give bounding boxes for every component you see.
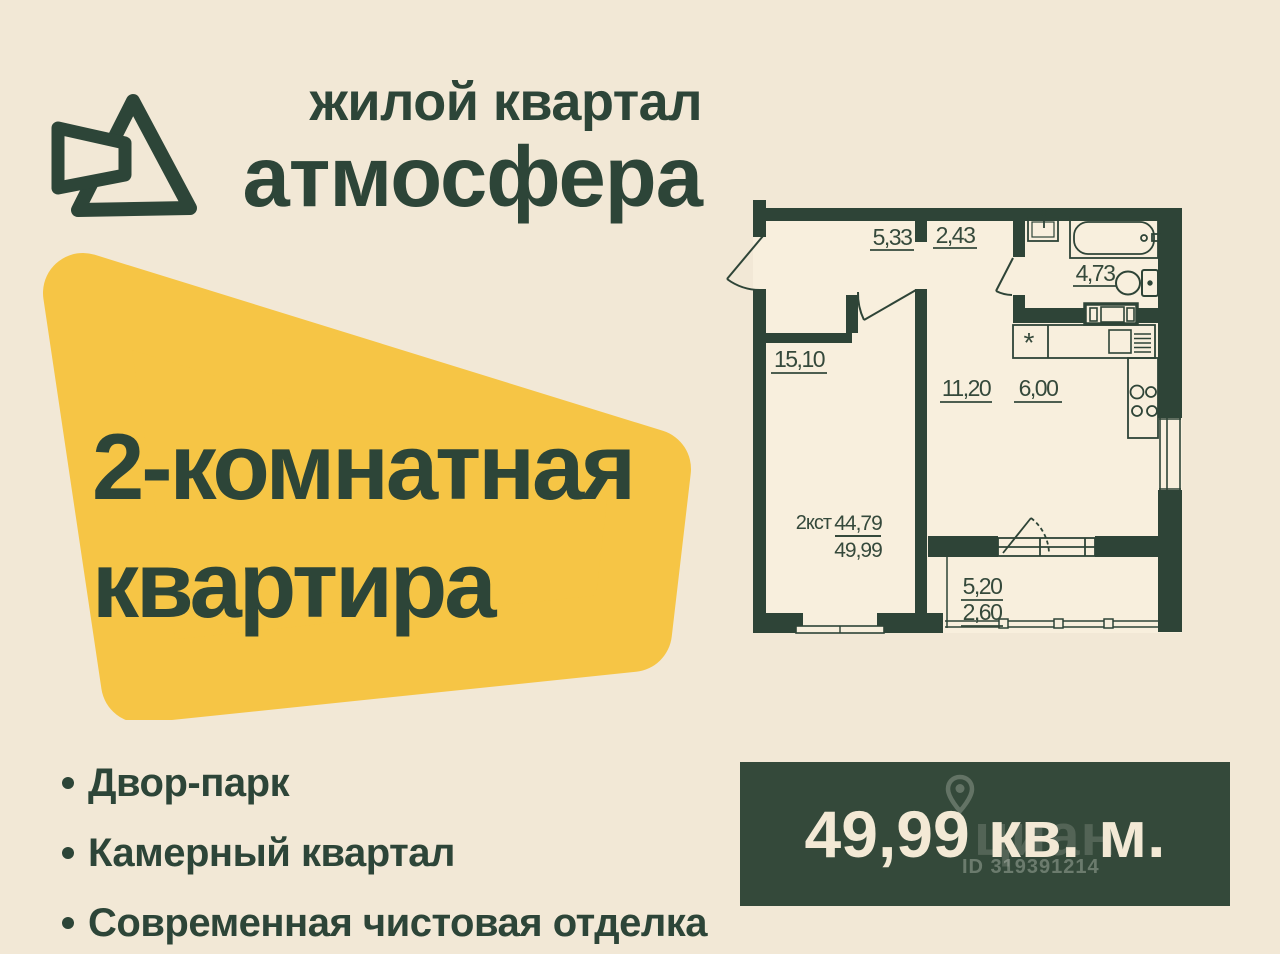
label-apartment-type: 2кст xyxy=(796,512,832,534)
bullet-dot-icon xyxy=(62,777,74,789)
label-living-area: 44,79 xyxy=(834,512,882,535)
brand-block: жилой квартал атмосфера xyxy=(243,74,702,222)
label-balcony-reduced: 2,60 xyxy=(963,599,1002,625)
floor-plan: * 5,33 2,43 4,73 15,10 11,20 6,00 2кст 4… xyxy=(690,185,1280,655)
bullet-dot-icon xyxy=(62,847,74,859)
feature-text: Двор-парк xyxy=(88,760,289,806)
feature-item: Камерный квартал xyxy=(62,830,707,876)
brand-subtitle: жилой квартал xyxy=(243,74,702,130)
label-hall-1: 5,33 xyxy=(873,224,912,250)
listing-poster: жилой квартал атмосфера 2-комнатная квар… xyxy=(0,0,1280,954)
brand-title: атмосфера xyxy=(243,134,702,222)
feature-text: Современная чистовая отделка xyxy=(88,900,707,946)
label-kitchen: 6,00 xyxy=(1019,375,1058,401)
label-bedroom: 15,10 xyxy=(774,346,825,372)
label-total-area: 49,99 xyxy=(834,539,882,562)
bullet-dot-icon xyxy=(62,917,74,929)
badge-text: 2-комнатная квартира xyxy=(92,408,633,644)
feature-text: Камерный квартал xyxy=(88,830,455,876)
atmosphere-logo-icon xyxy=(40,80,210,225)
bedroom-window xyxy=(796,613,884,633)
washing-machine-icon xyxy=(1085,304,1137,324)
badge-line2: квартира xyxy=(92,526,633,644)
kitchen-window xyxy=(1158,418,1182,490)
apartment-type-badge: 2-комнатная квартира xyxy=(30,250,710,720)
fridge-mark: * xyxy=(1024,327,1035,358)
feature-item: Двор-парк xyxy=(62,760,707,806)
label-balcony-area: 5,20 xyxy=(963,573,1002,599)
cian-watermark-id: ID 319391214 xyxy=(962,856,1100,879)
label-living: 11,20 xyxy=(942,375,991,401)
label-hall-2: 2,43 xyxy=(936,222,975,248)
total-area-box: циан ID 319391214 49,99 кв. м. xyxy=(740,762,1230,906)
features-list: Двор-парк Камерный квартал Современная ч… xyxy=(62,760,707,946)
badge-line1: 2-комнатная xyxy=(92,408,633,526)
feature-item: Современная чистовая отделка xyxy=(62,900,707,946)
floor-area xyxy=(753,208,1182,633)
label-bathroom: 4,73 xyxy=(1076,260,1115,286)
